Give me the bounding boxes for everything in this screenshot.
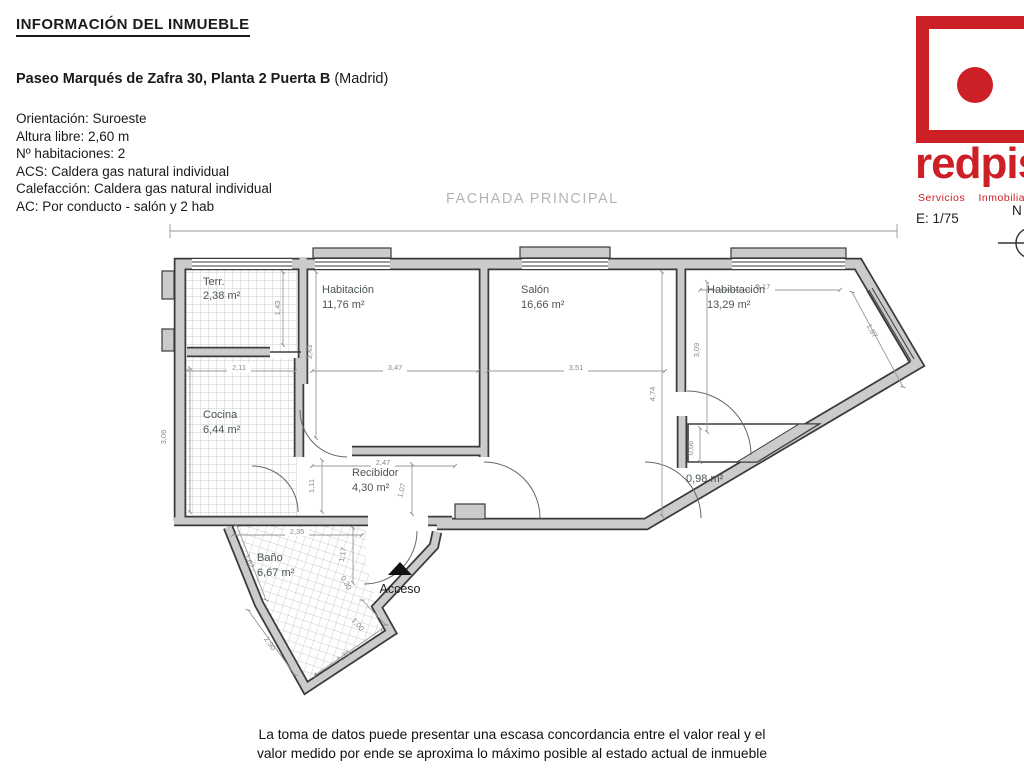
address-city: (Madrid) — [330, 71, 388, 87]
room-salon-area: 16,66 m² — [521, 299, 565, 311]
room-hab1-area: 11,76 m² — [322, 299, 365, 311]
dim-terraza-w: 2,11 — [232, 363, 246, 372]
dim-hab1-h: 3,43 — [305, 345, 314, 360]
room-cocina-name: Cocina — [203, 409, 238, 421]
disclaimer-line2: valor medido por ende se aproxima lo máx… — [152, 745, 872, 764]
room-terraza-area: 2,38 m² — [203, 290, 241, 302]
dim-hab2-h: 3,09 — [692, 343, 701, 358]
detail-rooms: Nº habitaciones: 2 — [16, 146, 125, 161]
dim-salon-door: 1,07 — [395, 482, 407, 498]
floor-plan: 2,11 3,47 3,51 3,17 2,47 2,35 1,43 3,43 … — [150, 218, 940, 718]
window-sills — [313, 247, 846, 258]
disclaimer: La toma de datos puede presentar una esc… — [152, 726, 872, 763]
dim-hab2-diag: 1,87 — [865, 322, 880, 339]
room-hab2-area: 13,29 m² — [707, 299, 751, 311]
north-label: N — [1012, 203, 1022, 218]
detail-heating: Calefacción: Caldera gas natural individ… — [16, 181, 272, 196]
dim-bano-w: 2,35 — [290, 527, 305, 536]
dim-recibidor-w: 2,47 — [376, 458, 391, 467]
dim-cocina-h: 3,06 — [159, 430, 168, 445]
room-salon-name: Salón — [521, 284, 549, 296]
detail-orientation: Orientación: Suroeste — [16, 111, 147, 126]
detail-acs: ACS: Caldera gas natural individual — [16, 164, 229, 179]
wall-pilaster — [162, 329, 174, 351]
dim-salon-w: 3,51 — [569, 363, 584, 372]
room-hab2-name: Habibtación — [707, 284, 765, 296]
brand-tagline: Servicios Inmobiliarios — [918, 192, 1024, 204]
room-recibidor-area: 4,30 m² — [352, 482, 390, 494]
dim-hab1-w: 3,47 — [388, 363, 403, 372]
dim-terraza-h: 1,43 — [273, 301, 282, 316]
room-recibidor-name: Recibidor — [352, 467, 399, 479]
room-armario-area: 0,98 m² — [686, 473, 724, 485]
room-hab1-name: Habitación — [322, 284, 374, 296]
property-details: Orientación: Suroeste Altura libre: 2,60… — [16, 110, 272, 215]
entry-step — [455, 504, 485, 519]
facade-label: FACHADA PRINCIPAL — [446, 191, 619, 207]
brand-name: redpiso — [915, 142, 1024, 186]
room-cocina-area: 6,44 m² — [203, 424, 241, 436]
wall-pilaster — [162, 271, 174, 299]
dim-pasillo-w: 1,11 — [307, 479, 316, 493]
detail-ac: AC: Por conducto - salón y 2 hab — [16, 199, 214, 214]
dim-salon-h: 4,74 — [648, 387, 657, 402]
room-bano-name: Baño — [257, 552, 283, 564]
page-title: INFORMACIÓN DEL INMUEBLE — [16, 16, 250, 37]
dim-armario-h: 0,66 — [686, 441, 695, 456]
address-main: Paseo Marqués de Zafra 30, Planta 2 Puer… — [16, 71, 330, 87]
disclaimer-line1: La toma de datos puede presentar una esc… — [152, 726, 872, 745]
north-compass-icon — [992, 222, 1024, 266]
overall-dimension-line — [170, 224, 897, 238]
room-bano-area: 6,67 m² — [257, 567, 295, 579]
detail-height: Altura libre: 2,60 m — [16, 129, 129, 144]
property-address: Paseo Marqués de Zafra 30, Planta 2 Puer… — [16, 71, 388, 87]
room-terraza-name: Terr. — [203, 276, 224, 288]
access-label: Acceso — [380, 582, 421, 596]
redpiso-logo-dot-icon — [957, 67, 993, 103]
closet — [688, 424, 819, 462]
